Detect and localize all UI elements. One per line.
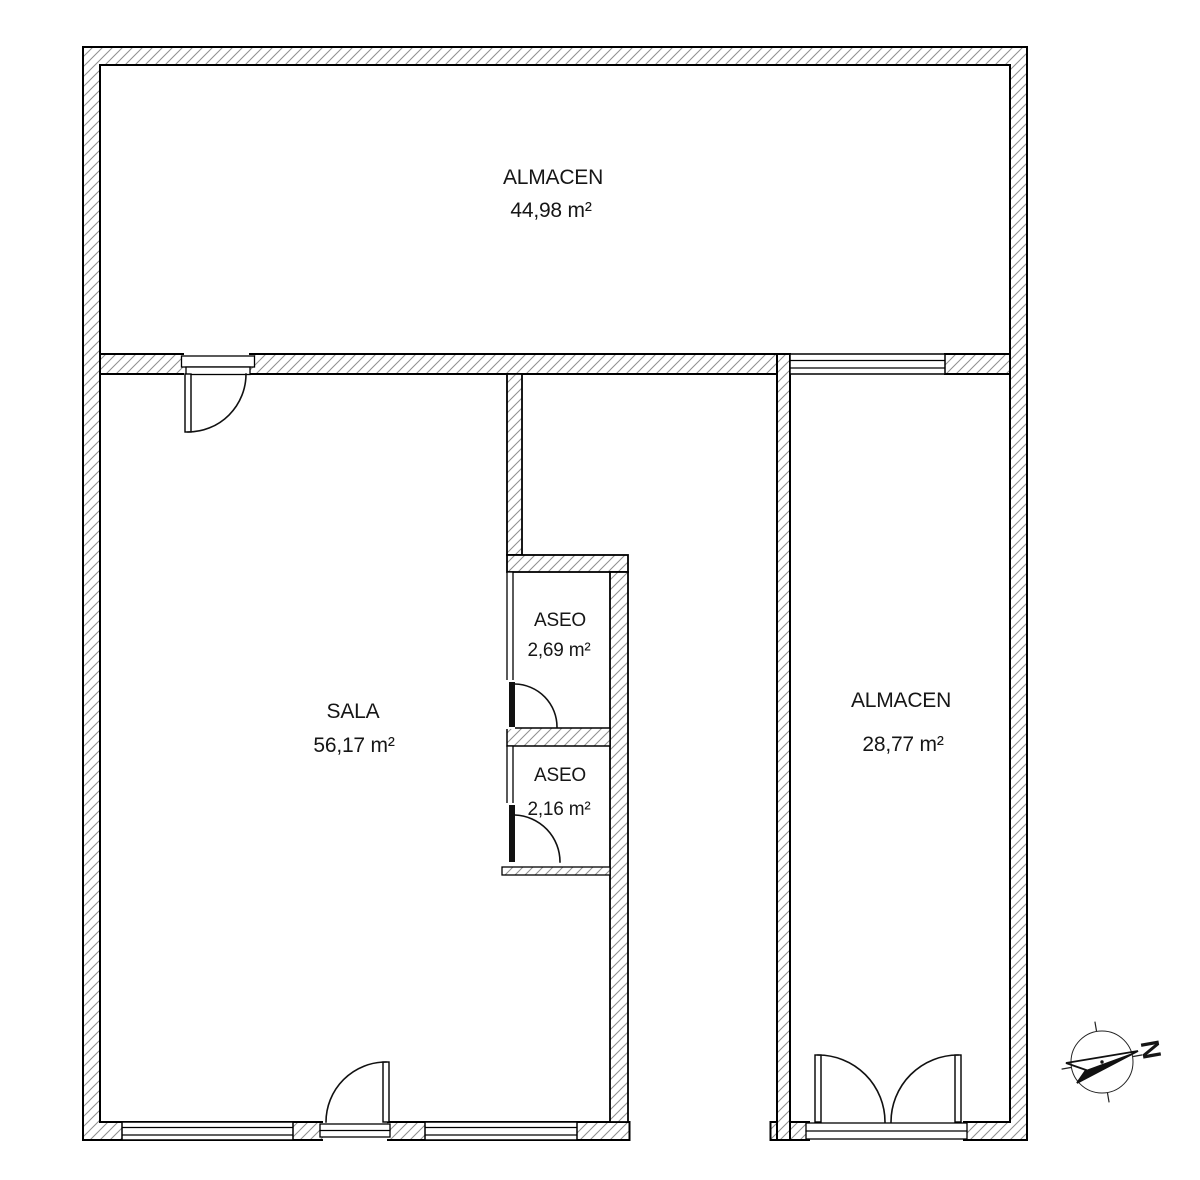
double-door-almacen: [806, 1055, 967, 1142]
aseo-top-wall: [507, 555, 628, 572]
internal-wall-stub: [507, 374, 522, 555]
room-area-almacen-right: 28,77 m²: [862, 733, 943, 756]
door-leaf: [955, 1055, 961, 1122]
room-labels: ALMACEN 44,98 m² SALA 56,17 m² ASEO 2,69…: [313, 166, 951, 820]
north-label: N: [1135, 1038, 1168, 1062]
aseo-middle-wall: [507, 728, 610, 746]
door-leaf: [815, 1055, 821, 1122]
window: [122, 1122, 293, 1140]
door-arc: [515, 815, 560, 862]
aseo1-left-wall: [507, 572, 513, 682]
door-leaf: [185, 374, 191, 432]
window: [790, 354, 945, 374]
door-top: [182, 356, 255, 432]
window: [425, 1122, 577, 1140]
aseo2-left-wall: [507, 746, 513, 805]
door-arc: [515, 684, 557, 727]
room-area-aseo-2: 2,16 m²: [527, 799, 590, 820]
door-leaf: [509, 682, 515, 727]
door-leaf: [509, 805, 515, 862]
doors: [182, 356, 968, 1142]
internal-wall-vertical-right: [777, 354, 790, 1140]
door-aseo-1: [505, 680, 557, 729]
aseo-bottom-wall: [502, 867, 610, 875]
room-label-sala: SALA: [327, 700, 380, 723]
door-leaf: [383, 1062, 389, 1122]
room-area-sala: 56,17 m²: [313, 734, 394, 757]
windows: [122, 354, 945, 1140]
aseo-right-wall: [610, 572, 628, 1122]
door-arc: [818, 1055, 885, 1122]
room-label-aseo-1: ASEO: [534, 610, 586, 631]
bottom-opening-gap: [630, 1119, 771, 1143]
room-area-aseo-1: 2,69 m²: [527, 640, 590, 661]
room-label-aseo-2: ASEO: [534, 765, 586, 786]
door-arc: [326, 1062, 386, 1122]
room-label-almacen-top: ALMACEN: [503, 166, 603, 189]
north-compass: N: [1062, 1022, 1168, 1103]
compass-center-dot: [1100, 1060, 1103, 1063]
door-arc: [891, 1055, 958, 1122]
door-sala-bottom: [320, 1062, 390, 1142]
room-label-almacen-right: ALMACEN: [851, 689, 951, 712]
floor-plan-svg: ALMACEN 44,98 m² SALA 56,17 m² ASEO 2,69…: [0, 0, 1200, 1180]
door-arc: [188, 374, 246, 432]
room-area-almacen-top: 44,98 m²: [510, 199, 591, 222]
floor-plan-page: ALMACEN 44,98 m² SALA 56,17 m² ASEO 2,69…: [0, 0, 1200, 1180]
